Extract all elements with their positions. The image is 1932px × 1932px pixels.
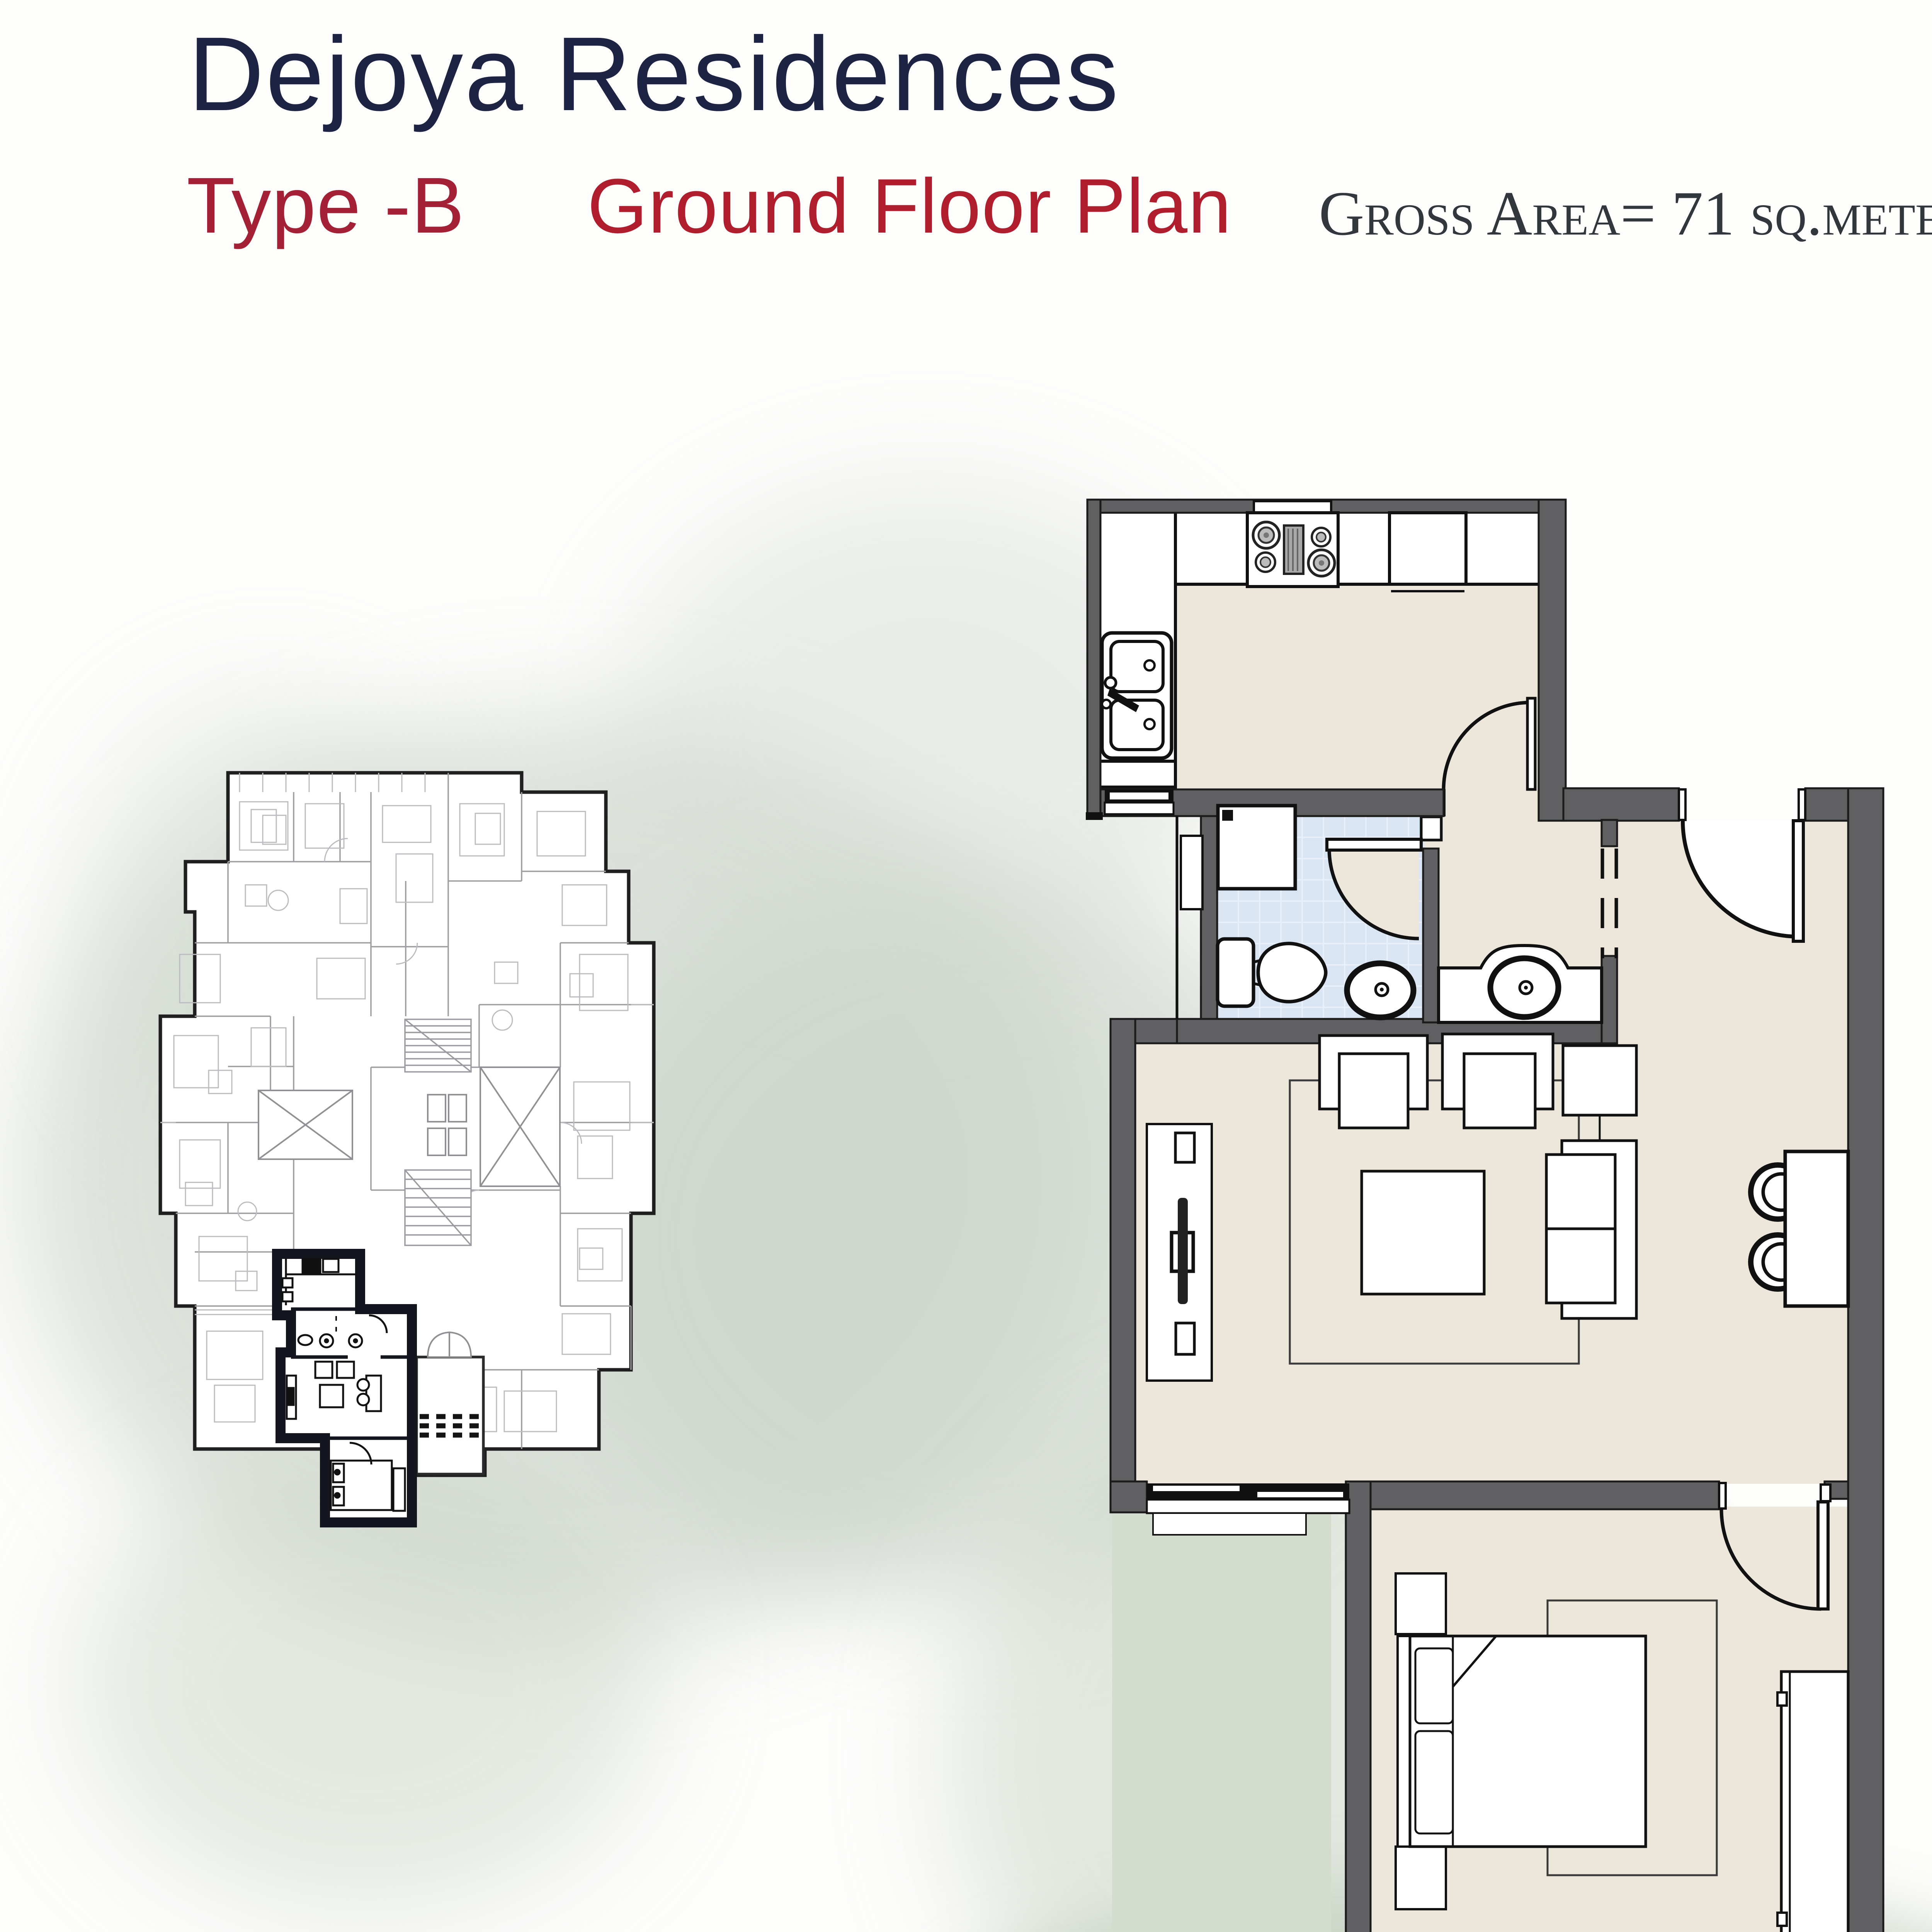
svg-text:Type -B: Type -B	[187, 161, 465, 250]
svg-text:Dejoya Residences: Dejoya Residences	[188, 15, 1120, 133]
svg-text:Gross Area= 71 sq.meter: Gross Area= 71 sq.meter	[1319, 179, 1932, 248]
svg-text:Ground Floor Plan: Ground Floor Plan	[587, 163, 1232, 249]
